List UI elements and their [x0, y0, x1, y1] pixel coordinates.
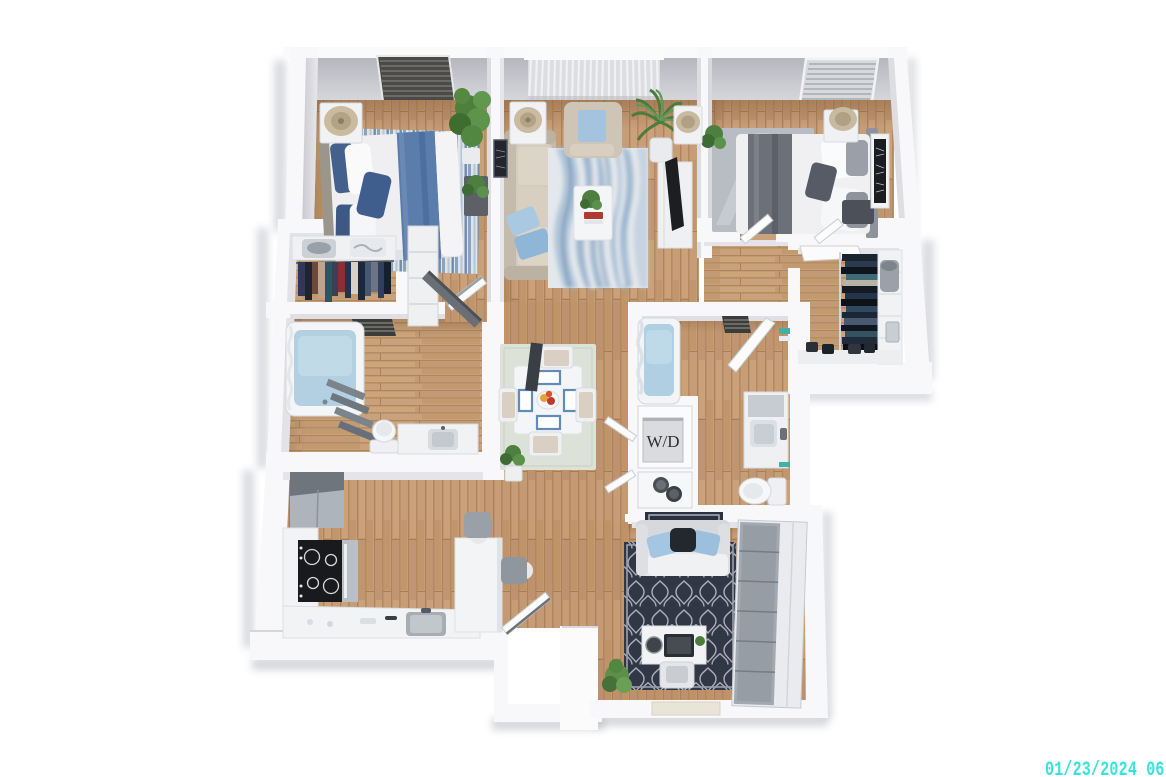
svg-text:W/D: W/D: [646, 432, 679, 451]
